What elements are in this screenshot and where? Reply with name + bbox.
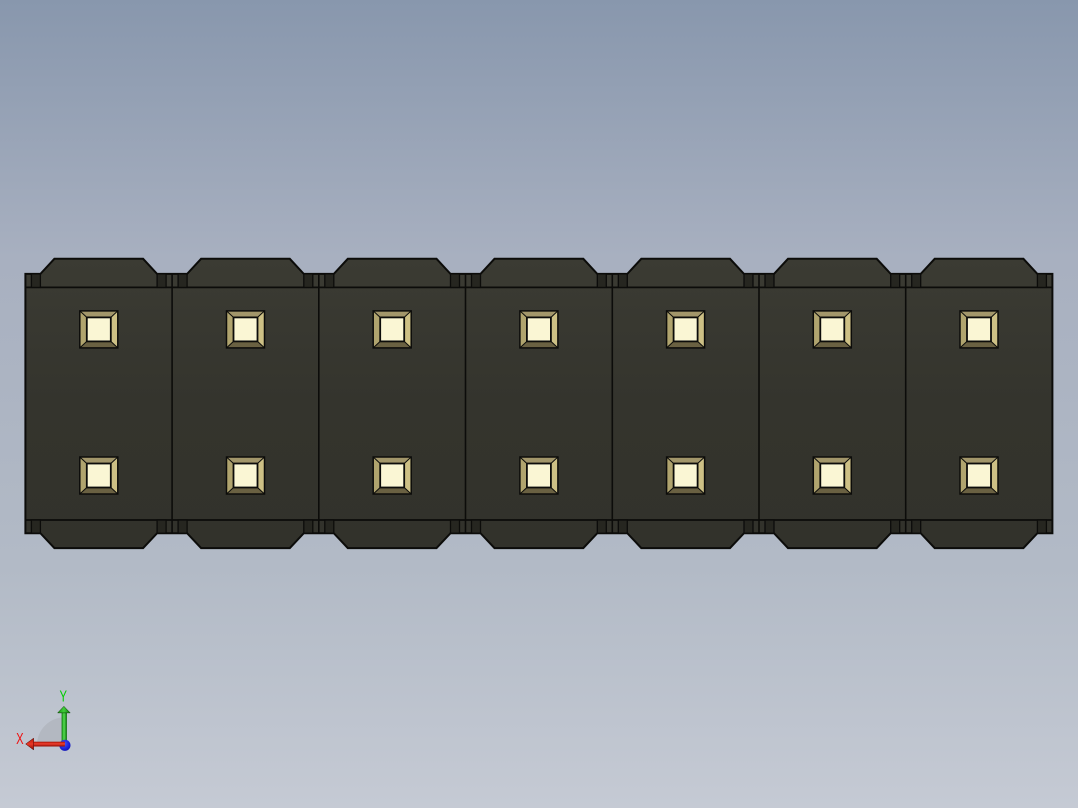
svg-text:Y: Y (59, 689, 67, 706)
svg-text:X: X (16, 731, 24, 748)
